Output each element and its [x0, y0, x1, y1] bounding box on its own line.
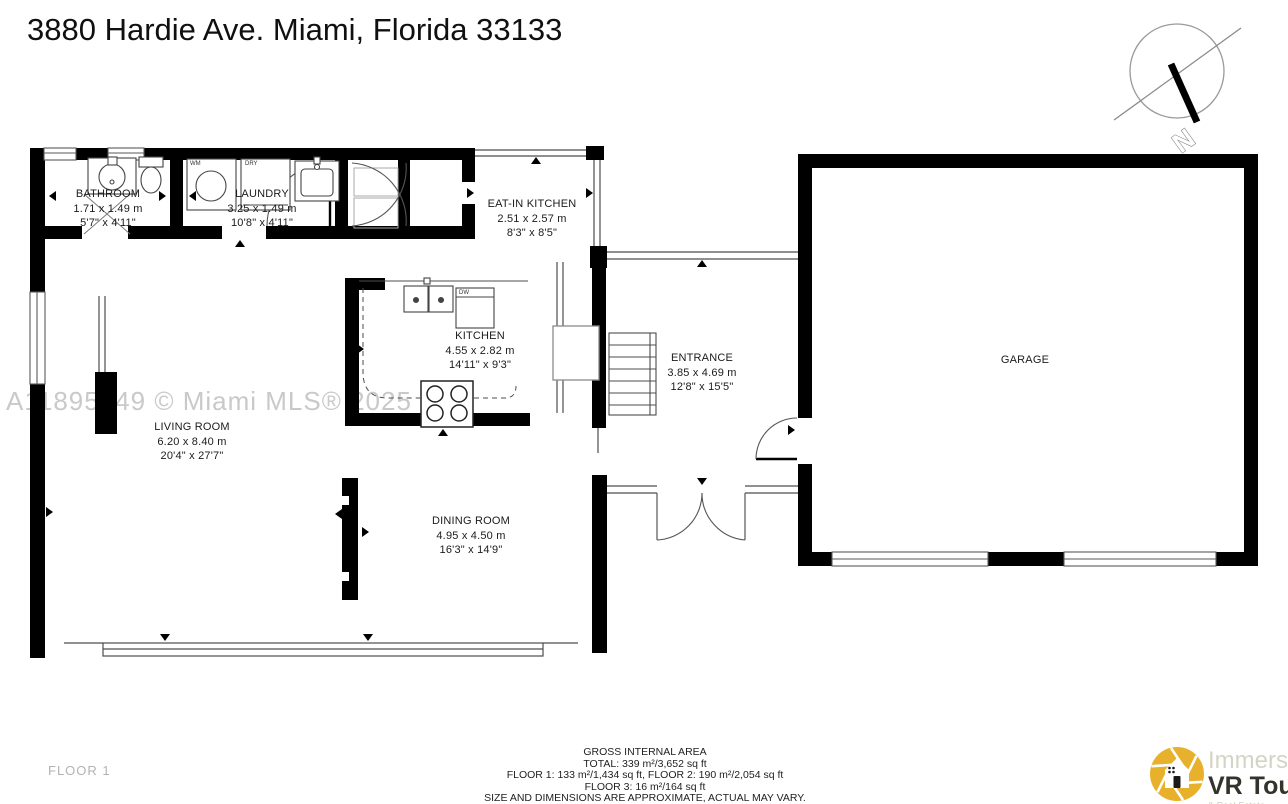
dryer-tag: DRY: [245, 161, 258, 167]
stove-icon: [421, 381, 473, 427]
toilet-icon: [139, 157, 163, 167]
room-size-imperial: 5'7" x 4'11": [73, 216, 142, 231]
room-label-eat-in-kitchen: EAT-IN KITCHEN 2.51 x 2.57 m 8'3" x 8'5": [488, 197, 577, 241]
room-size-metric: 6.20 x 8.40 m: [154, 435, 230, 450]
room-label-entrance: ENTRANCE 3.85 x 4.69 m 12'8" x 15'5": [667, 351, 736, 395]
room-label-bathroom: BATHROOM 1.71 x 1.49 m 5'7" x 4'11": [73, 187, 142, 231]
washer-tag: WM: [190, 161, 201, 167]
room-label-kitchen: KITCHEN 4.55 x 2.82 m 14'11" x 9'3": [445, 329, 514, 373]
floor-plan-svg: N: [0, 0, 1288, 804]
room-size-imperial: 10'8" x 4'11": [227, 216, 296, 231]
logo-brand-top: Immersive: [1208, 749, 1288, 773]
room-size-imperial: 20'4" x 27'7": [154, 449, 230, 464]
room-name: ENTRANCE: [667, 351, 736, 366]
compass-needle-icon: [1171, 64, 1197, 122]
compass-north-label: N: [1167, 123, 1200, 159]
room-label-laundry: LAUNDRY 3.25 x 1.49 m 10'8" x 4'11": [227, 187, 296, 231]
room-size-imperial: 12'8" x 15'5": [667, 380, 736, 395]
room-size-metric: 4.55 x 2.82 m: [445, 344, 514, 359]
room-name: LAUNDRY: [227, 187, 296, 202]
room-label-living-room: LIVING ROOM 6.20 x 8.40 m 20'4" x 27'7": [154, 420, 230, 464]
room-label-garage: GARAGE: [1001, 353, 1049, 368]
room-name: GARAGE: [1001, 353, 1049, 368]
room-size-imperial: 14'11" x 9'3": [445, 358, 514, 373]
dishwasher-tag: DW: [459, 290, 469, 296]
footer-line: GROSS INTERNAL AREA: [424, 747, 866, 759]
room-size-metric: 1.71 x 1.49 m: [73, 202, 142, 217]
footer-line: FLOOR 1: 133 m²/1,434 sq ft, FLOOR 2: 19…: [424, 770, 866, 782]
room-name: DINING ROOM: [432, 514, 510, 529]
room-name: KITCHEN: [445, 329, 514, 344]
room-name: BATHROOM: [73, 187, 142, 202]
sliding-window: [64, 643, 578, 656]
room-size-metric: 4.95 x 4.50 m: [432, 529, 510, 544]
gross-area-footer: GROSS INTERNAL AREA TOTAL: 339 m²/3,652 …: [424, 747, 866, 804]
room-size-metric: 3.85 x 4.69 m: [667, 366, 736, 381]
logo-aperture-icon: [1150, 747, 1204, 801]
footer-line: SIZE AND DIMENSIONS ARE APPROXIMATE, ACT…: [424, 793, 866, 804]
walls-layer: [30, 146, 1258, 658]
room-name: EAT-IN KITCHEN: [488, 197, 577, 212]
logo-brand-main: VR Tours: [1208, 774, 1288, 799]
room-label-dining-room: DINING ROOM 4.95 x 4.50 m 16'3" x 14'9": [432, 514, 510, 558]
floor-plan-page: A11895349 © Miami MLS® 2025: [0, 0, 1288, 804]
column-block: [553, 326, 599, 380]
compass: N: [1114, 24, 1241, 159]
vr-tours-logo: Immersive VR Tours & Real Estate Photogr…: [1208, 749, 1288, 804]
room-size-imperial: 8'3" x 8'5": [488, 226, 577, 241]
room-size-metric: 3.25 x 1.49 m: [227, 202, 296, 217]
windows-layer: [30, 148, 1216, 656]
room-name: LIVING ROOM: [154, 420, 230, 435]
floor-number-label: FLOOR 1: [48, 763, 111, 778]
room-size-imperial: 16'3" x 14'9": [432, 543, 510, 558]
stairs: [609, 333, 656, 415]
room-size-metric: 2.51 x 2.57 m: [488, 212, 577, 227]
kitchen-sink-icon: [404, 278, 453, 312]
